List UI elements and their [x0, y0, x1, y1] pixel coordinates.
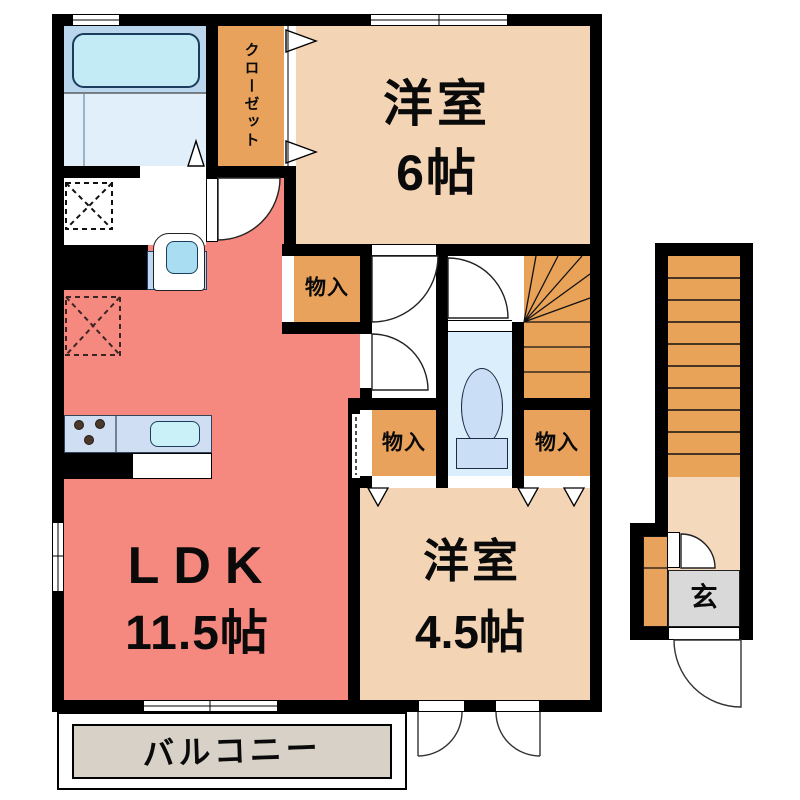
storage-door-marker-2 — [518, 488, 538, 506]
ldk-size-label: 11.5帖 — [125, 610, 269, 658]
bedroom6-name-label: 洋室 — [383, 79, 491, 129]
window-balcony-mullion — [143, 701, 278, 711]
bedroom45-size-label: 4.5帖 — [415, 609, 525, 655]
door-swing-hall-bedroom6 — [372, 256, 438, 322]
stairs-indoor-treads — [524, 256, 590, 372]
bathroom-door-marker — [188, 141, 204, 166]
washing-machine-space — [66, 183, 112, 229]
door-swing-entry — [674, 640, 741, 707]
floor-plan: 洋室 6帖 LDK 11.5帖 洋室 4.5帖 クローゼット 物入 物入 物入 … — [0, 0, 800, 800]
ldk-name-label: LDK — [128, 540, 277, 592]
closet-door-marker-top — [286, 30, 316, 52]
stove-burners — [75, 420, 105, 445]
storage-lower-right-label: 物入 — [535, 433, 579, 454]
entrance-label: 玄 — [691, 585, 718, 612]
window-swing-left — [418, 712, 462, 756]
door-swing-entrance-inner — [681, 534, 715, 568]
balcony-label: バルコニー — [142, 732, 322, 770]
window-bedroom6-mullion — [370, 15, 508, 25]
storage-lower-left-label: 物入 — [382, 433, 426, 454]
storage-upper-label: 物入 — [305, 278, 349, 299]
door-swing-hall-ldk — [372, 334, 428, 390]
bedroom6-size-label: 6帖 — [396, 148, 478, 198]
closet-door-marker-bottom — [286, 141, 316, 163]
storage-door-marker-3 — [564, 488, 584, 506]
stairs-outdoor-treads — [668, 278, 740, 454]
window-ldk-left-mullion — [53, 522, 63, 592]
closet-label: クローゼット — [244, 42, 259, 150]
bedroom45-name-label: 洋室 — [423, 538, 521, 584]
door-swing-toilet — [448, 258, 508, 318]
window-swing-right — [496, 712, 540, 756]
door-swing-washroom — [218, 178, 280, 240]
storage-door-marker-1 — [368, 488, 388, 506]
refrigerator-space — [66, 297, 120, 355]
